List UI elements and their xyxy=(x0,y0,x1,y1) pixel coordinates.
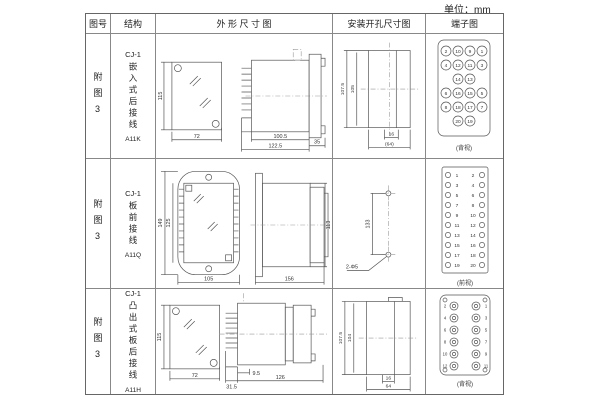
dim-side-len-a11q: 156 xyxy=(285,276,294,282)
header-outline: 外 形 尺 寸 图 xyxy=(216,17,271,30)
svg-text:15: 15 xyxy=(467,90,473,96)
svg-text:10: 10 xyxy=(455,48,461,54)
header-install: 安装开孔尺寸图 xyxy=(347,17,410,30)
structure-row2: CJ-1 板前接线 A11Q xyxy=(125,189,141,259)
dim-front-height-a11k: 115 xyxy=(158,91,164,100)
svg-text:12: 12 xyxy=(443,364,448,369)
install-drawing-a11q: 133 2-Φ5 xyxy=(333,159,425,289)
model-label-row3: A11H xyxy=(125,387,141,394)
svg-text:10: 10 xyxy=(470,212,476,218)
dim-install-vinner-a11k: 105 xyxy=(350,84,356,92)
series-label-row2: CJ-1 xyxy=(125,189,141,198)
fig-no-row3: 附图3 xyxy=(92,317,105,366)
model-label-row1: A11K xyxy=(125,136,140,143)
dim-install-houter-a11k: (64) xyxy=(385,141,394,147)
svg-text:19: 19 xyxy=(454,262,460,268)
dim-install-holes-a11q: 2-Φ5 xyxy=(346,264,358,270)
svg-text:17: 17 xyxy=(454,252,460,258)
svg-text:1: 1 xyxy=(456,172,459,178)
svg-text:11: 11 xyxy=(468,62,473,68)
structure-text-row1: 嵌入式后接线 xyxy=(127,62,139,131)
dim-install-vouter-a11k: 107.5 xyxy=(340,82,346,95)
svg-text:12: 12 xyxy=(455,62,461,68)
svg-text:5: 5 xyxy=(456,192,459,198)
svg-text:20: 20 xyxy=(455,118,461,124)
dim-len-inner-a11k: 100.5 xyxy=(273,133,287,139)
terminal-view-label-a11k: (背视) xyxy=(456,144,472,152)
svg-text:4: 4 xyxy=(445,62,448,68)
svg-text:8: 8 xyxy=(444,340,447,345)
svg-text:7: 7 xyxy=(456,202,459,208)
svg-text:8: 8 xyxy=(445,104,448,110)
dim-install-hinner-a11h: 16 xyxy=(386,376,392,382)
svg-text:6: 6 xyxy=(444,328,447,333)
series-label-row3: CJ-1 xyxy=(125,289,141,298)
svg-text:2: 2 xyxy=(472,172,475,178)
svg-text:4: 4 xyxy=(444,316,447,321)
svg-text:14: 14 xyxy=(455,76,461,82)
svg-text:6: 6 xyxy=(472,192,475,198)
fig-no-row2: 附图3 xyxy=(92,199,105,248)
svg-text:5: 5 xyxy=(481,90,484,96)
svg-text:20: 20 xyxy=(470,262,476,268)
svg-text:12: 12 xyxy=(470,222,476,228)
svg-text:9: 9 xyxy=(456,212,459,218)
svg-text:13: 13 xyxy=(454,232,460,238)
svg-text:5: 5 xyxy=(485,328,488,333)
dim-install-v-a11q: 133 xyxy=(366,219,372,228)
svg-text:19: 19 xyxy=(467,118,473,124)
svg-text:7: 7 xyxy=(485,340,488,345)
dim-front-width-a11h: 72 xyxy=(192,373,198,379)
svg-text:16: 16 xyxy=(470,242,476,248)
svg-text:1: 1 xyxy=(481,48,484,54)
dim-pin-len-a11h: 31.5 xyxy=(226,385,237,391)
svg-text:7: 7 xyxy=(481,104,484,110)
dim-install-houter-a11h: 64 xyxy=(386,384,392,390)
dim-flange-a11k: 35 xyxy=(314,139,320,145)
install-drawing-a11h: 107.5 104 16 64 xyxy=(333,289,425,394)
header-fig-no: 图号 xyxy=(89,17,107,30)
outline-drawing-a11k: 115 72 100.5 122.5 35 xyxy=(156,34,332,159)
svg-text:18: 18 xyxy=(455,104,461,110)
svg-text:3: 3 xyxy=(481,62,484,68)
svg-text:14: 14 xyxy=(470,232,476,238)
fig-no-row1: 附图3 xyxy=(92,72,105,121)
svg-text:3: 3 xyxy=(485,316,488,321)
svg-text:1: 1 xyxy=(485,304,488,309)
spec-table: 图号 结构 外 形 尺 寸 图 安装开孔尺寸图 端子图 附图3 CJ-1 嵌入式… xyxy=(85,13,504,395)
series-label-row1: CJ-1 xyxy=(125,50,141,59)
terminal-drawing-a11q: 1234567891011121314151617181920 (前视) xyxy=(426,159,503,289)
svg-text:18: 18 xyxy=(470,252,476,258)
structure-row1: CJ-1 嵌入式后接线 A11K xyxy=(125,50,141,143)
outline-drawing-a11q: 149 125 105 156 113 xyxy=(156,159,332,289)
terminal-drawing-a11k: 2109141211314136161558181772019 (背视) xyxy=(426,34,503,159)
outline-drawing-a11h: 115 72 9.5 31.5 126 xyxy=(156,289,332,394)
svg-text:8: 8 xyxy=(472,202,475,208)
svg-text:15: 15 xyxy=(454,242,460,248)
structure-text-row2: 板前接线 xyxy=(127,201,139,247)
svg-text:2: 2 xyxy=(445,48,448,54)
svg-text:16: 16 xyxy=(455,90,461,96)
install-drawing-a11k: 107.5 105 16 (64) xyxy=(333,34,425,159)
dim-front-hinner-a11q: 125 xyxy=(166,218,172,227)
dim-install-vouter-a11h: 107.5 xyxy=(338,332,344,345)
svg-text:4: 4 xyxy=(472,182,475,188)
terminal-drawing-a11h: 214365871091211 (背视) xyxy=(426,289,503,394)
svg-text:9: 9 xyxy=(485,352,488,357)
dim-install-vinner-a11h: 104 xyxy=(347,334,353,342)
model-label-row2: A11Q xyxy=(125,252,141,259)
svg-text:6: 6 xyxy=(445,90,448,96)
svg-text:9: 9 xyxy=(469,48,472,54)
svg-text:11: 11 xyxy=(484,364,489,369)
dim-offset-a11h: 9.5 xyxy=(252,371,260,377)
dim-front-width-a11k: 72 xyxy=(194,133,200,139)
dim-front-houter-a11q: 149 xyxy=(158,218,164,227)
dim-side-height-a11q: 113 xyxy=(326,220,332,229)
dim-body-len-a11h: 126 xyxy=(276,375,285,381)
svg-text:17: 17 xyxy=(467,104,473,110)
header-structure: 结构 xyxy=(124,17,142,30)
document-page: 单位：mm 图号 结构 外 形 尺 寸 图 安装开孔尺寸图 端子图 附图3 CJ… xyxy=(0,0,600,400)
dim-install-hinner-a11k: 16 xyxy=(389,131,395,137)
terminal-view-label-a11q: (前视) xyxy=(457,279,473,287)
svg-text:3: 3 xyxy=(456,182,459,188)
structure-row3: CJ-1 凸出式板后接线 A11H xyxy=(125,289,141,394)
header-terminal: 端子图 xyxy=(451,17,478,30)
dim-len-outer-a11k: 122.5 xyxy=(268,143,282,149)
structure-text-row3: 凸出式板后接线 xyxy=(127,301,139,382)
svg-text:2: 2 xyxy=(444,304,447,309)
svg-text:11: 11 xyxy=(455,222,460,228)
dim-front-height-a11h: 115 xyxy=(157,333,163,342)
svg-text:10: 10 xyxy=(443,352,448,357)
dim-front-width-a11q: 105 xyxy=(204,276,213,282)
svg-text:13: 13 xyxy=(467,76,473,82)
terminal-view-label-a11h: (背视) xyxy=(457,380,473,388)
